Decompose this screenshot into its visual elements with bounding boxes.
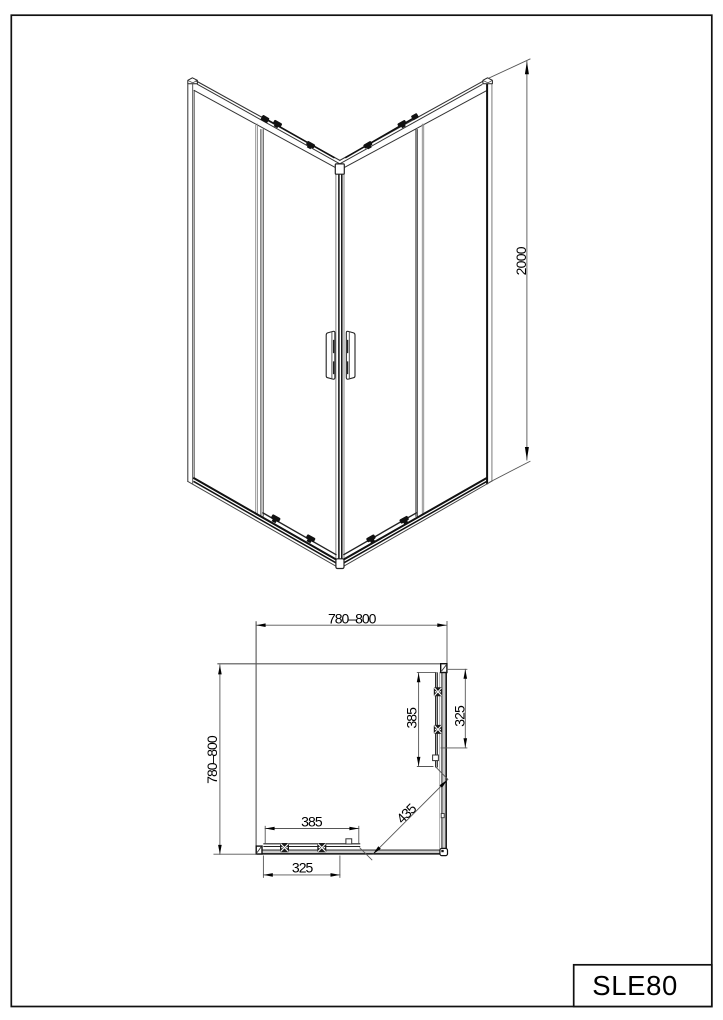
svg-text:325: 325 <box>452 705 468 727</box>
svg-text:780–800: 780–800 <box>328 610 377 626</box>
svg-text:385: 385 <box>301 813 323 829</box>
svg-text:385: 385 <box>403 707 419 729</box>
svg-text:2000: 2000 <box>513 246 529 275</box>
svg-text:325: 325 <box>292 860 314 876</box>
svg-text:SLE80: SLE80 <box>592 970 677 1001</box>
svg-text:780–800: 780–800 <box>204 735 220 784</box>
